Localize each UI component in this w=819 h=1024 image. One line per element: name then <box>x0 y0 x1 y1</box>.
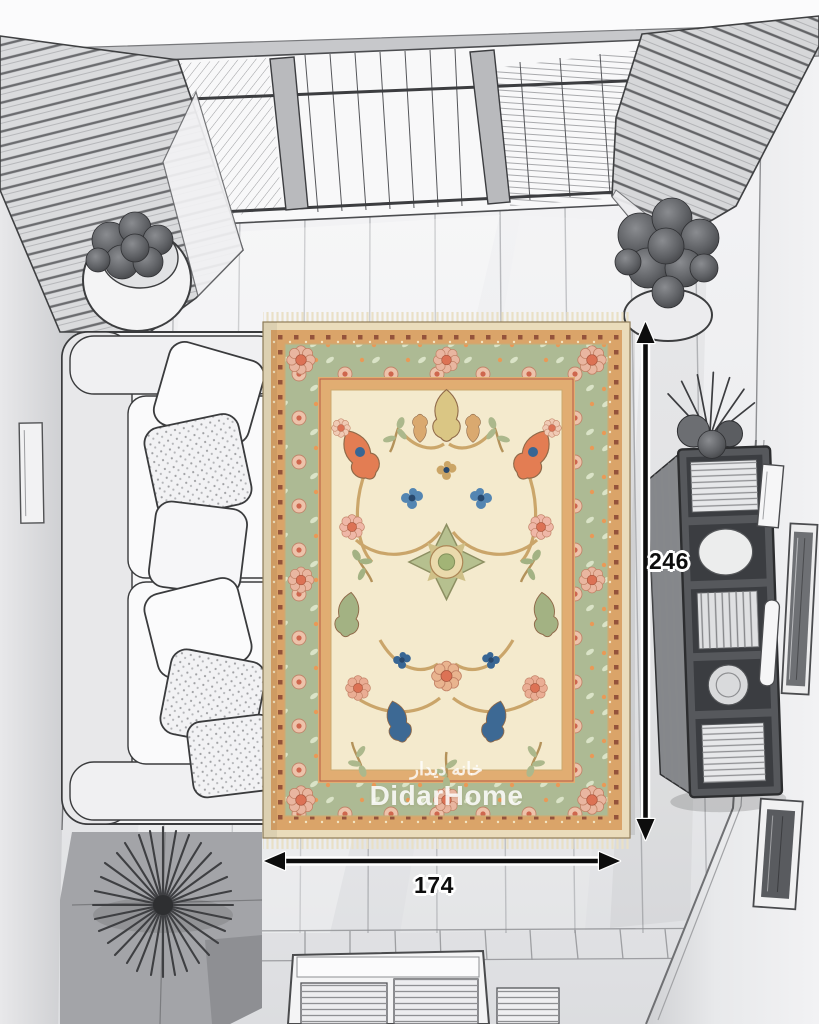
sofa <box>62 332 290 824</box>
rug-room-visualization: 246 174 خانه دیدار DidarHome <box>0 0 819 1024</box>
rug-fringe-top <box>263 312 630 322</box>
skylight-window <box>162 40 660 224</box>
rug <box>263 312 635 849</box>
rug-fringe-bottom <box>263 838 630 849</box>
potted-plant-top-right <box>615 198 719 341</box>
books <box>690 460 767 783</box>
wall-frame-right-small <box>757 464 783 528</box>
room-sketch <box>0 0 819 1024</box>
wall-frame-bottom-right <box>753 799 802 910</box>
wall-frame-left <box>19 423 44 523</box>
rug-height-dimension-label: 246 <box>649 548 689 575</box>
rug-width-dimension-label: 174 <box>414 872 454 899</box>
